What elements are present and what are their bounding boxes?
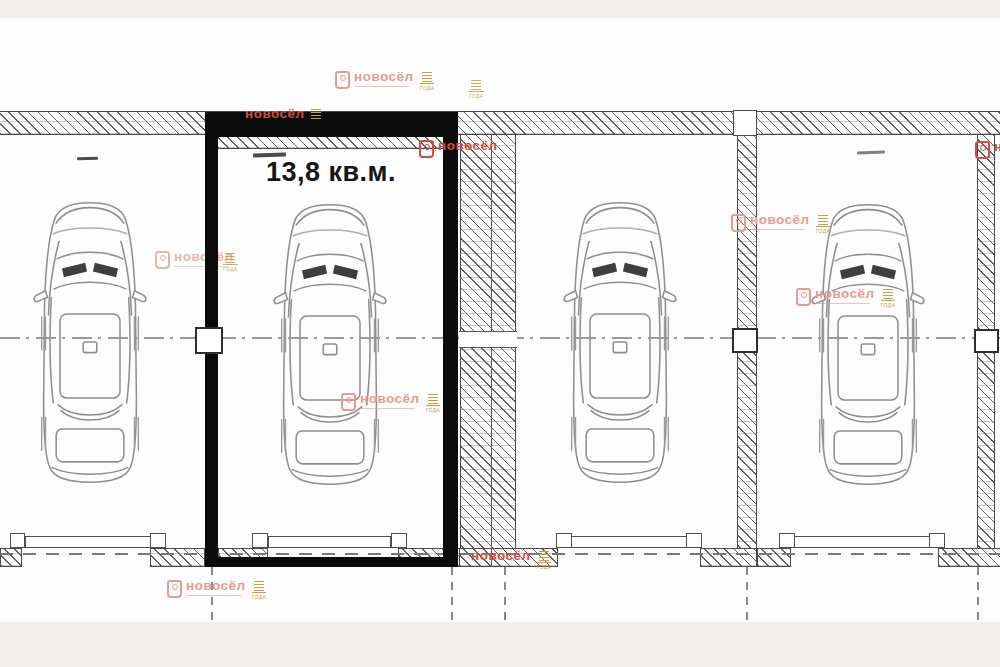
- novosel-logo-icon: [155, 251, 170, 269]
- wall-break: [459, 331, 517, 348]
- axis-extension: [504, 567, 506, 622]
- watermark: новосёл: [155, 250, 234, 270]
- award-icon: ГОДА: [252, 579, 267, 600]
- door-jamb: [150, 533, 166, 548]
- axis-extension: [977, 567, 979, 622]
- novosel-logo-icon: [796, 288, 811, 306]
- award-icon: ГОДА: [420, 70, 435, 91]
- award-icon: ГОДА: [223, 251, 238, 272]
- door-jamb: [779, 533, 795, 548]
- door-jamb: [929, 533, 945, 548]
- wall-stub: [150, 548, 205, 567]
- garage-door: [571, 536, 687, 548]
- watermark: ГОДА: [467, 78, 484, 99]
- watermark: новосёл ГОДА: [335, 70, 434, 91]
- car-top-view: [32, 194, 148, 490]
- watermark-text: новосёл: [186, 579, 246, 593]
- wall-stub: [0, 548, 22, 567]
- watermark-tagline: [186, 595, 241, 599]
- axis-extension: [451, 567, 453, 622]
- divider-wall-2-3: [460, 134, 516, 567]
- car-top-view: [562, 194, 678, 490]
- top-wall: [0, 111, 1000, 135]
- award-icon: ГОДА: [469, 78, 484, 99]
- bottom-gray-band: [0, 622, 1000, 667]
- highlighted-stall-border-top: [205, 112, 458, 137]
- garage-door: [268, 536, 391, 548]
- door-jamb: [10, 533, 25, 548]
- wall-stub: [700, 548, 757, 567]
- door-jamb: [391, 533, 407, 548]
- watermark-tagline: [174, 266, 229, 270]
- top-gray-band: [0, 0, 1000, 18]
- wall-stub: [459, 548, 558, 567]
- wall-joint-line: [491, 134, 492, 567]
- area-label: 13,8 кв.м.: [218, 157, 444, 188]
- junction-box: [732, 328, 758, 353]
- axis-extension: [211, 567, 213, 622]
- watermark: новосёл ГОДА: [167, 579, 266, 600]
- door-jamb: [556, 533, 572, 548]
- wall-pilaster: [733, 110, 757, 136]
- highlighted-stall-inner-wall: [218, 137, 446, 149]
- watermark-text: новосёл: [354, 70, 414, 84]
- award-icon: ГОДА: [426, 392, 441, 413]
- plan-tick: [77, 157, 98, 161]
- junction-box: [974, 329, 999, 353]
- garage-door: [794, 536, 930, 548]
- watermark-text: новосёл: [750, 213, 810, 227]
- watermark-text: новосёл: [174, 250, 234, 264]
- highlighted-stall-border-right: [443, 112, 458, 567]
- plan-tick: [857, 151, 885, 155]
- garage-door: [25, 536, 151, 548]
- watermark-tagline: [354, 86, 409, 90]
- floor-plan: 13,8 кв.м. новосёл ГОДА ГОДА новосёл нов…: [0, 0, 1000, 667]
- car-top-view: [272, 196, 388, 492]
- wall-stub: [757, 548, 791, 567]
- wall-stub: [938, 548, 1000, 567]
- highlighted-stall-border-bottom: [205, 557, 458, 567]
- novosel-logo-icon: [167, 580, 182, 598]
- door-jamb: [686, 533, 702, 548]
- junction-box: [195, 327, 223, 354]
- watermark: ГОДА: [221, 251, 238, 272]
- door-jamb: [252, 533, 268, 548]
- axis-extension: [746, 567, 748, 622]
- novosel-logo-icon: [335, 71, 350, 89]
- car-top-view: [810, 196, 926, 492]
- bottom-wall-axis: [0, 553, 1000, 555]
- watermark-tagline: [750, 229, 805, 233]
